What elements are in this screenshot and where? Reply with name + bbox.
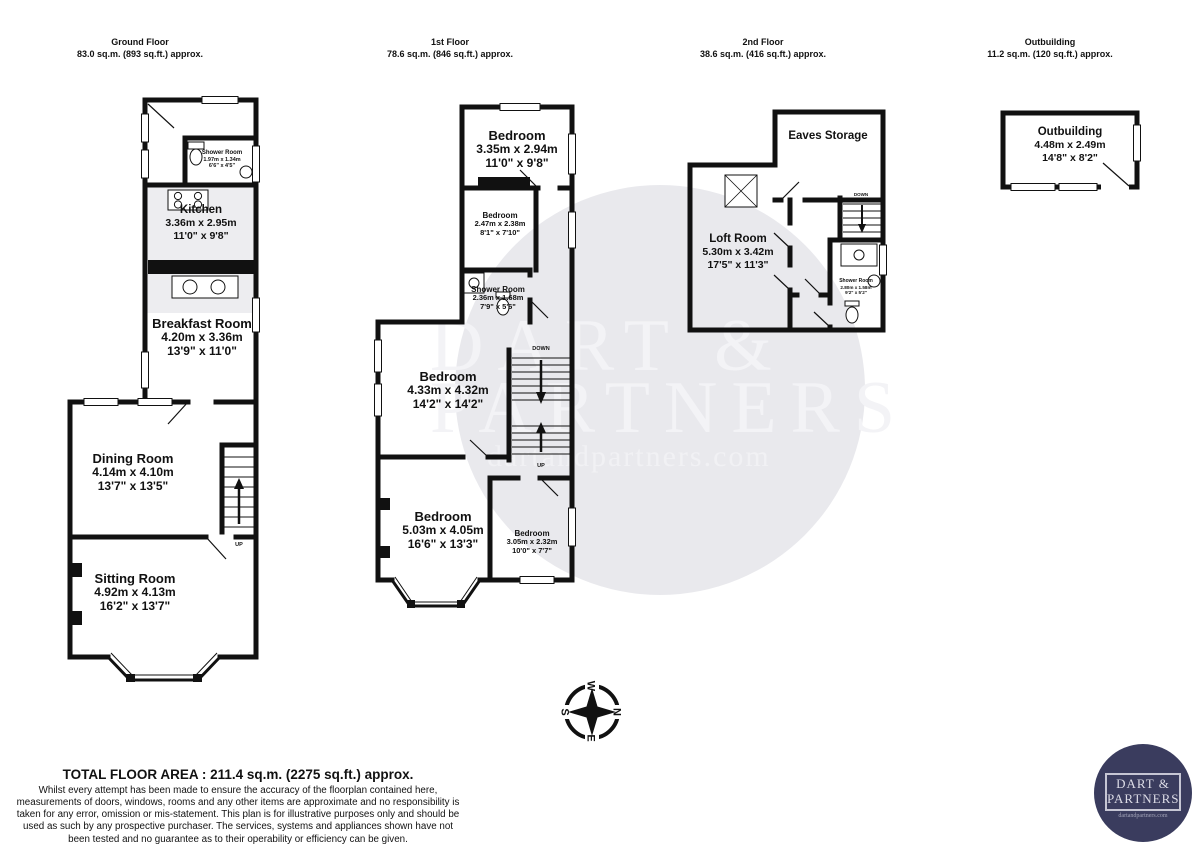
- room-label-bedroom-3: Bedroom 4.33m x 4.32m 14'2" x 14'2": [407, 369, 488, 412]
- room-name: Shower Room: [839, 279, 873, 285]
- stairs-down-label: DOWN: [854, 192, 868, 197]
- room-metric: 4.20m x 3.36m: [152, 331, 252, 345]
- room-metric: 3.35m x 2.94m: [476, 143, 557, 157]
- room-name: Shower Room: [202, 150, 242, 157]
- header-second-title: 2nd Floor: [653, 36, 873, 48]
- room-imperial: 14'2" x 14'2": [407, 398, 488, 412]
- first-bay-window: [392, 577, 480, 606]
- room-label-sitting: Sitting Room 4.92m x 4.13m 16'2" x 13'7": [94, 571, 175, 614]
- front-door: [148, 104, 174, 128]
- room-metric: 3.36m x 2.95m: [165, 217, 236, 229]
- room-name: Outbuilding: [1034, 126, 1105, 139]
- room-name: Bedroom: [407, 369, 488, 384]
- room-imperial: 16'6" x 13'3": [402, 538, 483, 552]
- disclaimer-text: Whilst every attempt has been made to en…: [12, 785, 464, 844]
- total-floor-area: TOTAL FLOOR AREA : 211.4 sq.m. (2275 sq.…: [12, 767, 464, 782]
- ground-bay-window: [108, 653, 220, 680]
- second-walls: [690, 112, 883, 330]
- header-second-floor: 2nd Floor 38.6 sq.m. (416 sq.ft.) approx…: [653, 36, 873, 60]
- compass-e: E: [585, 734, 597, 741]
- room-metric: 4.92m x 4.13m: [94, 586, 175, 600]
- compass-s: S: [559, 708, 571, 715]
- logo-line2: PARTNERS: [1107, 792, 1179, 807]
- room-name: Bedroom: [402, 509, 483, 524]
- room-label-outbuilding: Outbuilding 4.48m x 2.49m 14'8" x 8'2": [1034, 126, 1105, 164]
- sink-unit-icon: [841, 244, 877, 266]
- room-imperial: 16'2" x 13'7": [94, 600, 175, 614]
- room-metric: 4.33m x 4.32m: [407, 384, 488, 398]
- room-imperial: 13'9" x 11'0": [152, 345, 252, 359]
- room-imperial: 7'9" x 5'6": [471, 303, 525, 312]
- stairs-up-arrowhead: [536, 422, 546, 433]
- chimney-breast: [378, 498, 390, 510]
- skylight: [725, 175, 757, 207]
- header-first-floor: 1st Floor 78.6 sq.m. (846 sq.ft.) approx…: [340, 36, 560, 60]
- second-doors: [774, 182, 830, 327]
- header-outbuilding-title: Outbuilding: [940, 36, 1160, 48]
- header-ground-area: 83.0 sq.m. (893 sq.ft.) approx.: [30, 48, 250, 60]
- logo-line1: DART &: [1107, 777, 1179, 792]
- toilet-icon: [845, 301, 859, 306]
- room-name: Bedroom: [476, 128, 557, 143]
- compass-star: [568, 688, 616, 736]
- header-outbuilding-area: 11.2 sq.m. (120 sq.ft.) approx.: [940, 48, 1160, 60]
- logo-box: DART & PARTNERS: [1105, 773, 1181, 811]
- stairs-up-arrowhead: [234, 478, 244, 489]
- room-label-bedroom-5: Bedroom 3.05m x 2.32m 10'0" x 7'7": [507, 529, 558, 556]
- room-metric: 5.03m x 4.05m: [402, 524, 483, 538]
- room-metric: 5.30m x 3.42m: [702, 246, 773, 258]
- stairs-down-arrowhead: [536, 392, 546, 404]
- stairs-up-label: UP: [537, 463, 545, 469]
- room-name: Sitting Room: [94, 571, 175, 586]
- header-ground-floor: Ground Floor 83.0 sq.m. (893 sq.ft.) app…: [30, 36, 250, 60]
- toilet-icon: [188, 142, 204, 149]
- room-label-shower-ground: Shower Room 1.97m x 1.34m 6'6" x 4'5": [202, 150, 242, 170]
- room-label-shower-second: Shower Room 2.80m x 1.58m 9'2" x 5'2": [839, 279, 873, 295]
- room-imperial: 10'0" x 7'7": [507, 547, 558, 556]
- room-name: Dining Room: [92, 451, 173, 466]
- room-label-dining: Dining Room 4.14m x 4.10m 13'7" x 13'5": [92, 451, 173, 494]
- room-label-bedroom-1: Bedroom 3.35m x 2.94m 11'0" x 9'8": [476, 128, 557, 171]
- room-imperial: 13'7" x 13'5": [92, 480, 173, 494]
- footer: TOTAL FLOOR AREA : 211.4 sq.m. (2275 sq.…: [12, 767, 464, 844]
- agency-logo: DART & PARTNERS dartandpartners.com: [1094, 744, 1192, 842]
- room-name: Breakfast Room: [152, 316, 252, 331]
- door-gap: [1101, 182, 1129, 192]
- header-second-area: 38.6 sq.m. (416 sq.ft.) approx.: [653, 48, 873, 60]
- header-first-area: 78.6 sq.m. (846 sq.ft.) approx.: [340, 48, 560, 60]
- room-name: Loft Room: [702, 233, 773, 246]
- room-name: Kitchen: [165, 204, 236, 217]
- floorplan-page: DART & PARTNERS dartandpartners.com Grou…: [0, 0, 1200, 844]
- room-label-breakfast: Breakfast Room 4.20m x 3.36m 13'9" x 11'…: [152, 316, 252, 359]
- room-label-loft: Loft Room 5.30m x 3.42m 17'5" x 11'3": [702, 233, 773, 271]
- room-label-bedroom-4: Bedroom 5.03m x 4.05m 16'6" x 13'3": [402, 509, 483, 552]
- room-imperial: 17'5" x 11'3": [702, 259, 773, 271]
- room-name: Eaves Storage: [788, 130, 867, 143]
- compass-n: N: [611, 708, 623, 716]
- room-imperial: 9'2" x 5'2": [839, 290, 873, 295]
- room-label-bedroom-2: Bedroom 2.47m x 2.38m 8'1" x 7'10": [475, 211, 526, 238]
- header-first-title: 1st Floor: [340, 36, 560, 48]
- stairs-down-label: DOWN: [532, 346, 549, 352]
- room-imperial: 14'8" x 8'2": [1034, 152, 1105, 164]
- room-metric: 4.14m x 4.10m: [92, 466, 173, 480]
- stairs-up-label: UP: [235, 542, 243, 548]
- wardrobe: [478, 177, 530, 188]
- logo-url: dartandpartners.com: [1094, 813, 1192, 819]
- fireplace: [70, 563, 82, 577]
- header-outbuilding: Outbuilding 11.2 sq.m. (120 sq.ft.) appr…: [940, 36, 1160, 60]
- room-imperial: 6'6" x 4'5": [202, 163, 242, 169]
- second-window: [880, 245, 887, 275]
- room-imperial: 11'0" x 9'8": [476, 157, 557, 171]
- room-label-kitchen: Kitchen 3.36m x 2.95m 11'0" x 9'8": [165, 204, 236, 242]
- room-label-eaves: Eaves Storage: [788, 130, 867, 143]
- compass-icon: N E S W: [552, 672, 632, 752]
- kitchen-counter: [148, 260, 256, 274]
- header-ground-title: Ground Floor: [30, 36, 250, 48]
- room-imperial: 11'0" x 9'8": [165, 230, 236, 242]
- room-metric: 4.48m x 2.49m: [1034, 139, 1105, 151]
- compass-w: W: [585, 681, 597, 692]
- room-label-shower-first: Shower Room 2.36m x 1.68m 7'9" x 5'6": [471, 285, 525, 312]
- room-imperial: 8'1" x 7'10": [475, 229, 526, 238]
